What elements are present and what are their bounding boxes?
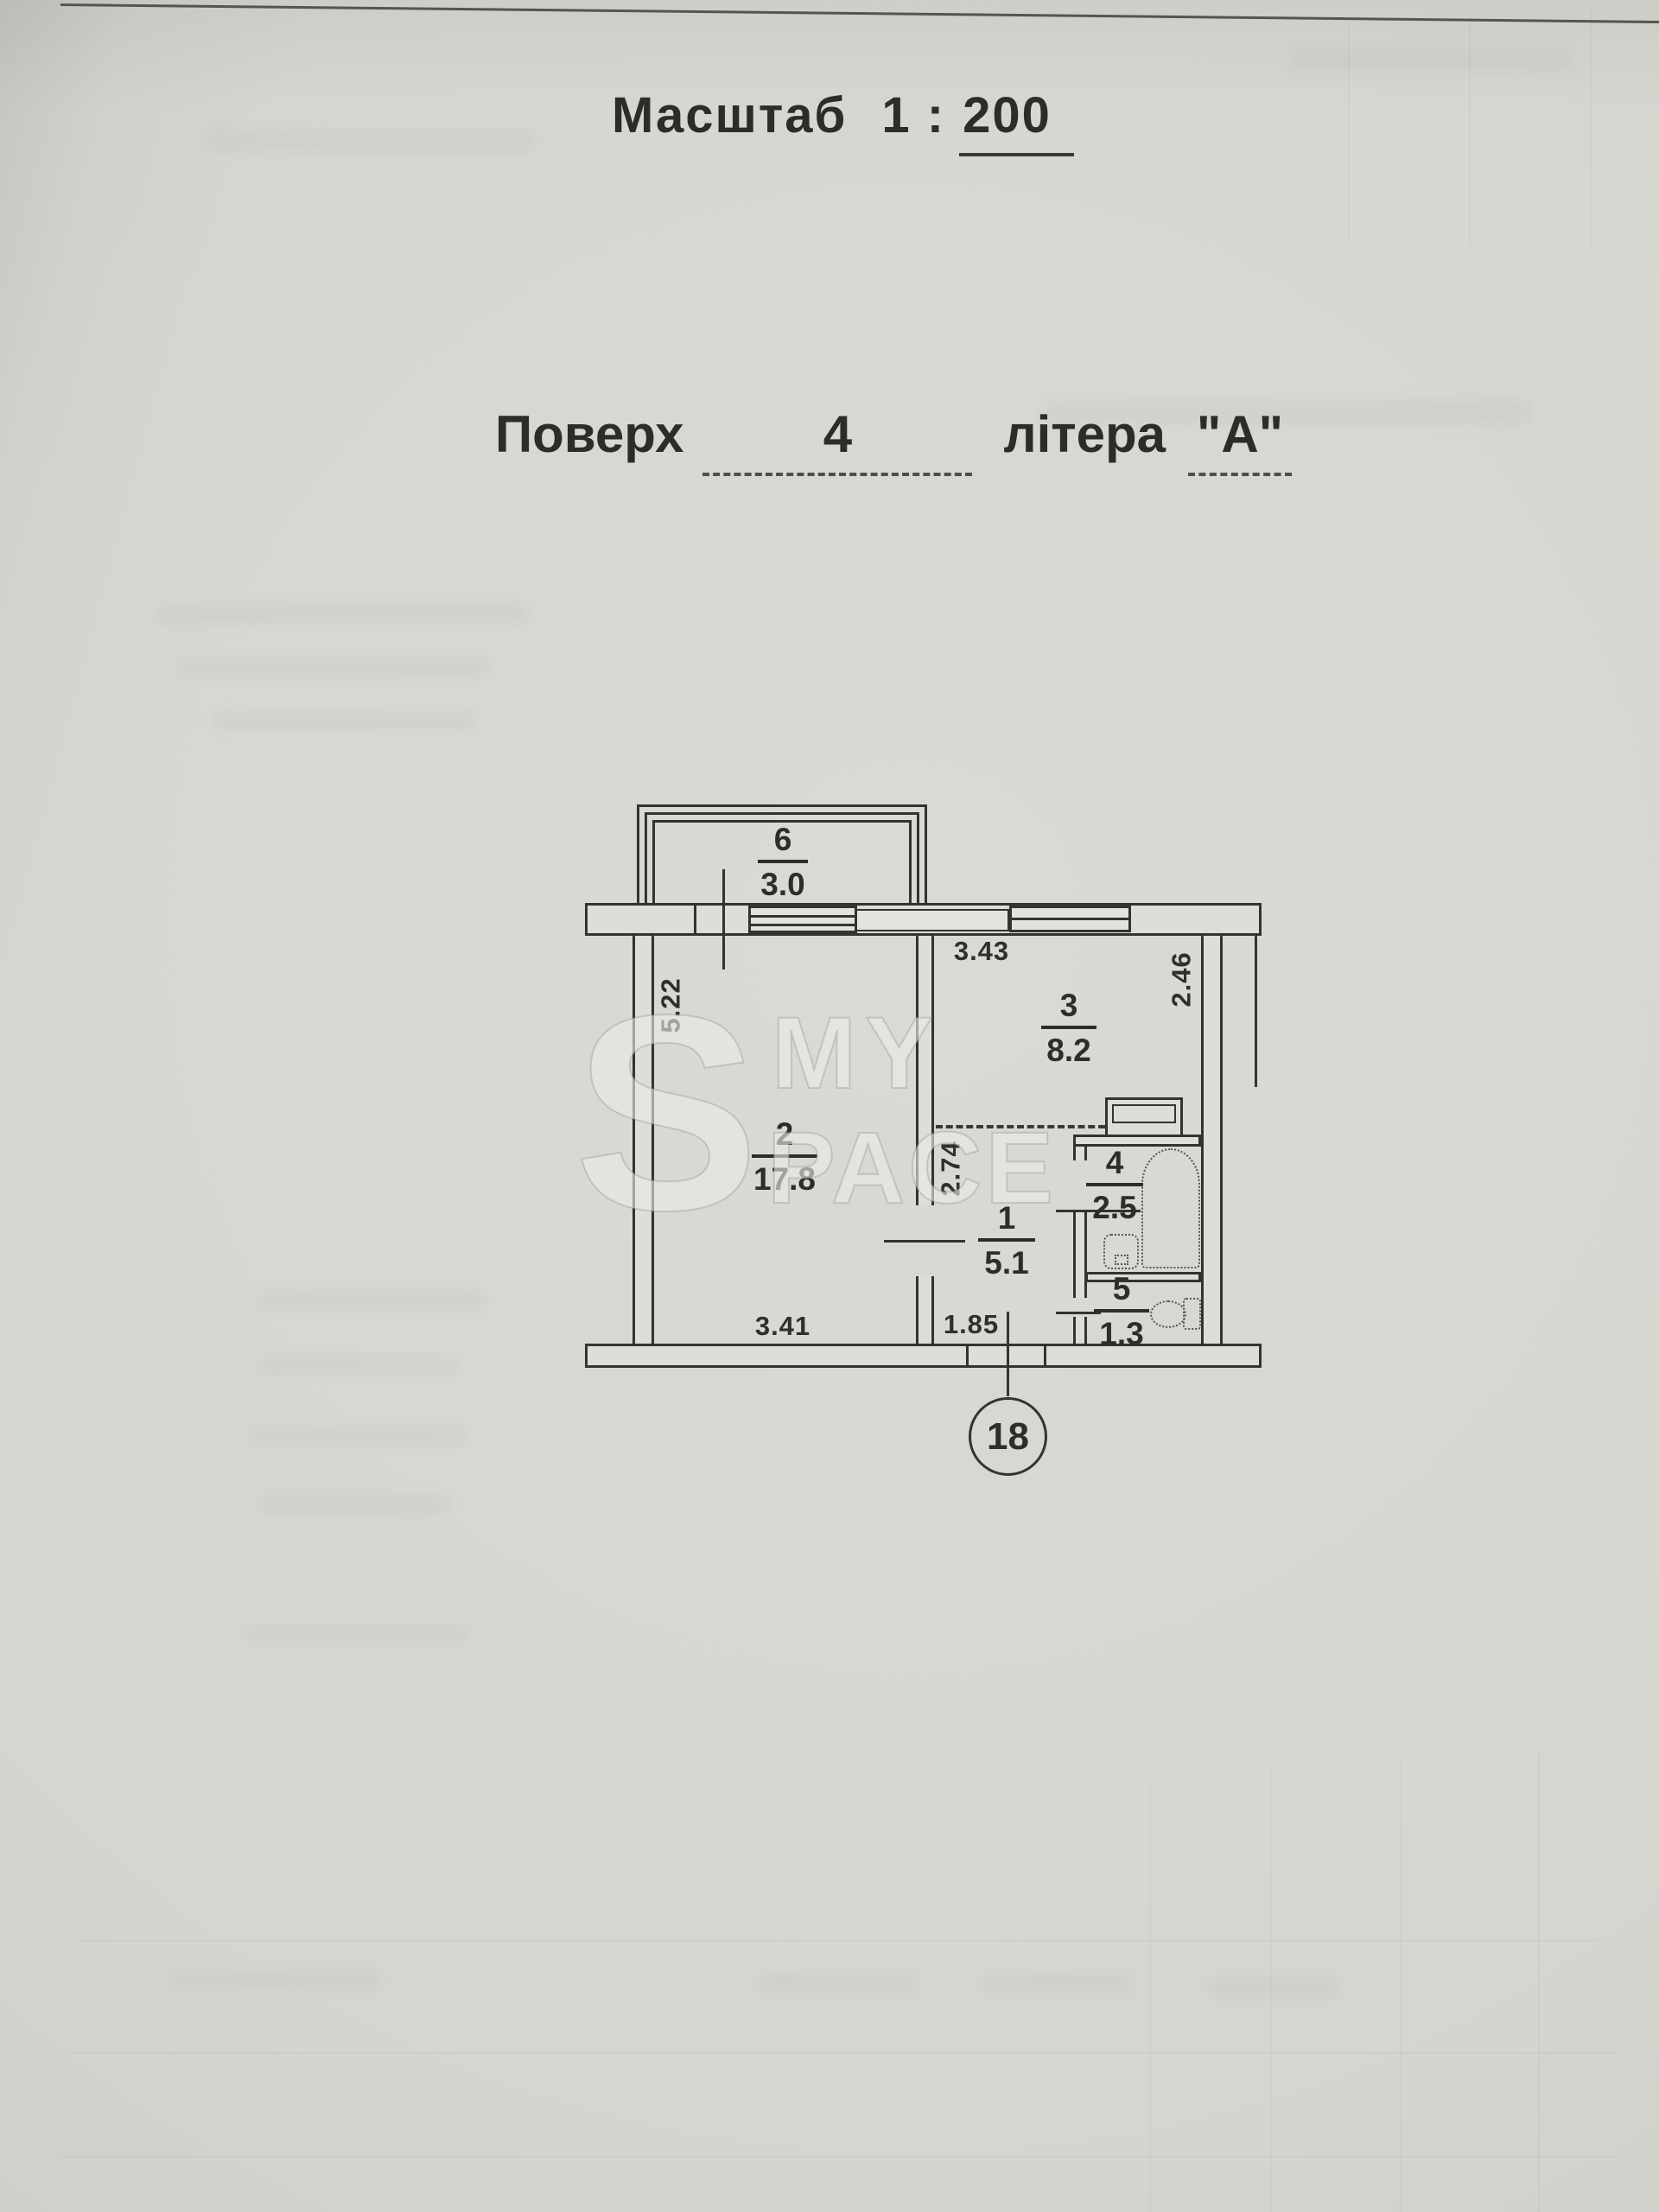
dimension-kitchen-right: 2.46 [1168, 924, 1195, 1036]
room-number: 6 [774, 823, 792, 855]
room-label-hall: 1 5.1 [946, 1202, 1067, 1279]
room-area: 17.8 [753, 1163, 816, 1195]
fraction-bar [1041, 1026, 1096, 1029]
kitchen-window [1009, 906, 1131, 932]
dimension-kitchen-top: 3.43 [925, 938, 1038, 964]
window-mullion [751, 924, 855, 926]
room-label-living: 2 17.8 [724, 1118, 845, 1195]
toilet-tank-icon [1183, 1298, 1201, 1330]
dimension-hall-bottom: 1.85 [915, 1311, 1027, 1338]
fraction-bar [978, 1238, 1035, 1242]
entrance-door-jamb-left [966, 1344, 969, 1368]
room-number: 4 [1106, 1147, 1124, 1179]
window-mullion [1012, 918, 1128, 920]
fraction-bar [1094, 1309, 1149, 1313]
apartment-number: 18 [987, 1415, 1029, 1459]
room-number: 1 [998, 1202, 1016, 1234]
apartment-number-circle: 18 [969, 1397, 1047, 1476]
room-number: 5 [1113, 1273, 1131, 1305]
fraction-bar [1086, 1183, 1143, 1186]
floor-plan: 6 3.0 3 8.2 2 17.8 1 5.1 4 2.5 5 1.3 5.2… [0, 0, 1659, 2212]
dimension-left-wall: 5.22 [658, 950, 684, 1062]
entrance-door-jamb-right [1044, 1344, 1046, 1368]
room-label-kitchen: 3 8.2 [1008, 989, 1129, 1066]
room-label-balcony: 6 3.0 [722, 823, 843, 900]
right-outer-edge-line [1255, 936, 1257, 1087]
balcony-window [748, 906, 857, 933]
room-area: 2.5 [1092, 1192, 1136, 1224]
balcony-door-jamb [694, 903, 696, 936]
room-label-toilet: 5 1.3 [1061, 1273, 1182, 1350]
window-mullion [751, 915, 855, 918]
fraction-bar [758, 860, 808, 863]
partition-room2-upper [916, 933, 934, 1205]
room-number: 2 [776, 1118, 794, 1150]
room-label-bathroom: 4 2.5 [1054, 1147, 1175, 1224]
top-wall-plain-segment [855, 909, 1009, 931]
sink-drain [1115, 1255, 1128, 1265]
sink-icon [1103, 1234, 1139, 1269]
dimension-hall-left: 2.74 [938, 1113, 964, 1225]
room-area: 3.0 [760, 868, 804, 900]
right-exterior-wall [1201, 933, 1223, 1345]
vent-shaft [1105, 1097, 1183, 1137]
left-exterior-wall [632, 933, 654, 1346]
room-area: 1.3 [1099, 1318, 1143, 1350]
room-number: 3 [1060, 989, 1078, 1021]
vent-shaft-inner [1112, 1104, 1176, 1123]
room-area: 8.2 [1046, 1034, 1090, 1066]
dimension-room-bottom: 3.41 [727, 1313, 839, 1339]
fraction-bar [752, 1154, 817, 1158]
scanned-floor-plan-page: { "header": { "scale_label": "Масштаб", … [0, 0, 1659, 2212]
room-area: 5.1 [984, 1247, 1028, 1279]
